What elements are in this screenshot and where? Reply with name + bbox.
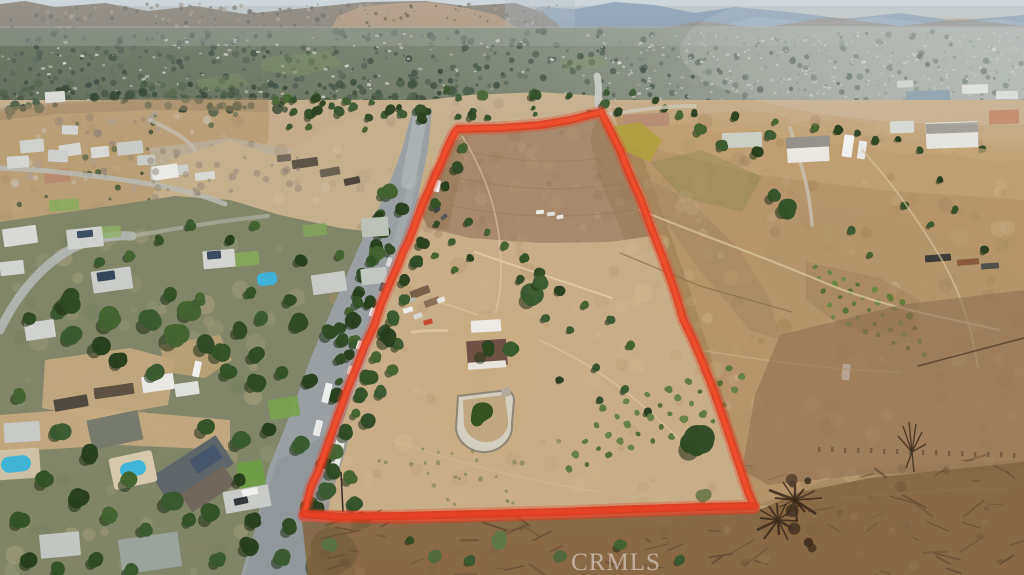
svg-text:CRMLS: CRMLS [571, 549, 661, 575]
